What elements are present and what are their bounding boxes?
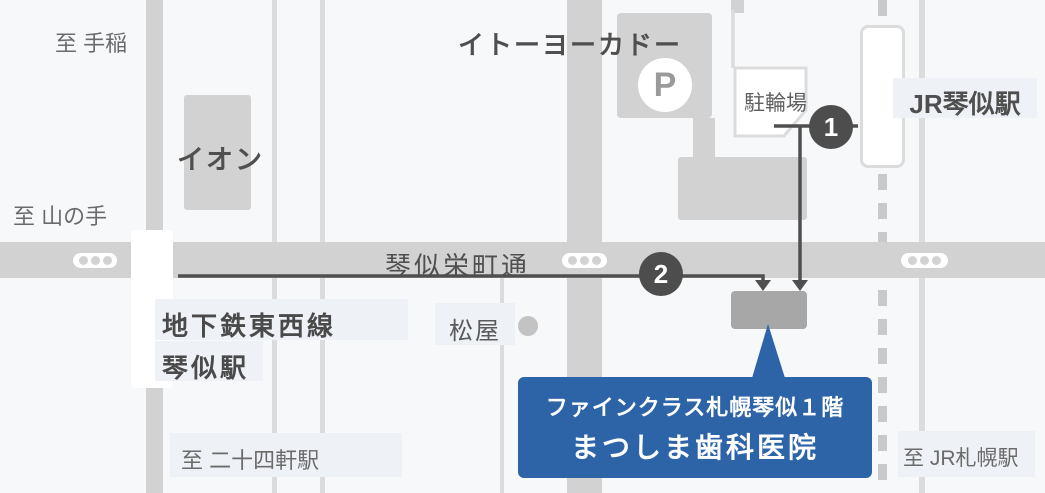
signal-dot (920, 256, 929, 265)
route-marker-1-number: 1 (824, 112, 838, 143)
route-1-arrowhead (792, 280, 808, 291)
traffic-signal-icon (901, 253, 948, 268)
edge-label-to-jr-sapporo: 至 JR札幌駅 (903, 442, 1019, 472)
route-marker-2: 2 (639, 252, 683, 296)
signal-dot (91, 256, 100, 265)
access-map: P 至 手稲 至 山の手 至 二十四軒駅 至 JR札幌駅 イオン イトーヨーカド… (0, 0, 1045, 493)
route-marker-2-number: 2 (654, 259, 668, 290)
traffic-signal-icon (562, 253, 607, 268)
destination-building-name: ファインクラス札幌琴似１階 (546, 390, 845, 422)
signal-dot (568, 256, 577, 265)
matsuya-label: 松屋 (435, 311, 515, 346)
edge-label-to-nijuyonken: 至 二十四軒駅 (181, 443, 319, 475)
subway-line-label: 地下鉄東西線 (162, 306, 336, 343)
signal-dot (580, 256, 589, 265)
signal-dot (103, 256, 112, 265)
signal-dot (932, 256, 941, 265)
jr-kotoni-station-label: JR琴似駅 (893, 84, 1037, 121)
street-name-label: 琴似栄町通 (385, 246, 530, 283)
edge-label-to-yamanote: 至 山の手 (13, 199, 107, 231)
bicycle-parking-label: 駐輪場 (744, 87, 807, 117)
route-marker-1: 1 (809, 105, 853, 149)
signal-dot (592, 256, 601, 265)
signal-dot (908, 256, 917, 265)
destination-clinic-name: まつしま歯科医院 (571, 426, 819, 466)
matsuya-location-dot (518, 316, 538, 336)
traffic-signal-icon (73, 253, 117, 268)
subway-station-label: 琴似駅 (162, 348, 249, 385)
destination-callout: ファインクラス札幌琴似１階 まつしま歯科医院 (518, 377, 872, 478)
signal-dot (79, 256, 88, 265)
destination-callout-pointer (752, 324, 785, 378)
edge-label-to-teine: 至 手稲 (55, 26, 127, 58)
route-2-arrowhead (755, 280, 771, 291)
aeon-label: イオン (177, 138, 264, 177)
ito-yokado-label: イトーヨーカドー (458, 25, 682, 62)
